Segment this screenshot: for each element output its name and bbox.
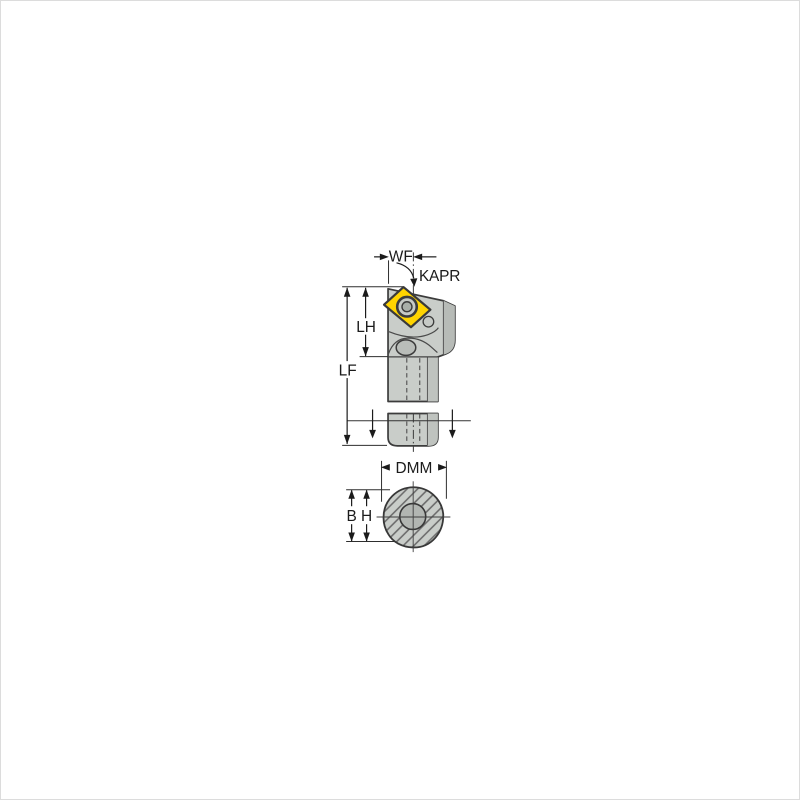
lh-label: LH: [356, 319, 376, 336]
lf-label: LF: [339, 363, 357, 380]
h-arrow-up: [363, 490, 370, 499]
lh-arrow-up: [362, 287, 369, 296]
head-bevel: [443, 301, 454, 355]
side-view: LF LH WF KAPR: [337, 249, 471, 452]
b-arrow-down: [348, 532, 355, 541]
lf-arrow-up: [344, 287, 351, 296]
lf-arrow-down: [344, 435, 351, 444]
dmm-label: DMM: [396, 460, 433, 477]
h-arrow-down: [363, 532, 370, 541]
section-view: DMM B H: [345, 460, 450, 552]
reference-arrow-left: [369, 430, 376, 438]
shank-edge-strip: [427, 357, 437, 402]
reference-arrow-right: [449, 430, 456, 438]
lh-arrow-down: [362, 347, 369, 356]
shank-lower-edge-strip: [427, 413, 437, 445]
screenshot-canvas: LF LH WF KAPR DMM: [0, 0, 800, 800]
insert-screw-center: [402, 302, 412, 312]
wf-label: WF: [389, 249, 413, 266]
kapr-arrow: [410, 278, 417, 287]
pocket-pin: [423, 316, 434, 327]
wf-arrow-left-pointing: [413, 254, 422, 261]
b-arrow-up: [348, 490, 355, 499]
clamp-screw: [396, 340, 416, 356]
wf-arrow-right-pointing: [380, 254, 389, 261]
h-label: H: [361, 508, 372, 525]
b-label: B: [346, 508, 356, 525]
technical-drawing: LF LH WF KAPR DMM: [1, 1, 799, 799]
dmm-arrow-left: [381, 464, 390, 471]
kapr-label: KAPR: [419, 268, 460, 285]
dmm-arrow-right: [438, 464, 447, 471]
